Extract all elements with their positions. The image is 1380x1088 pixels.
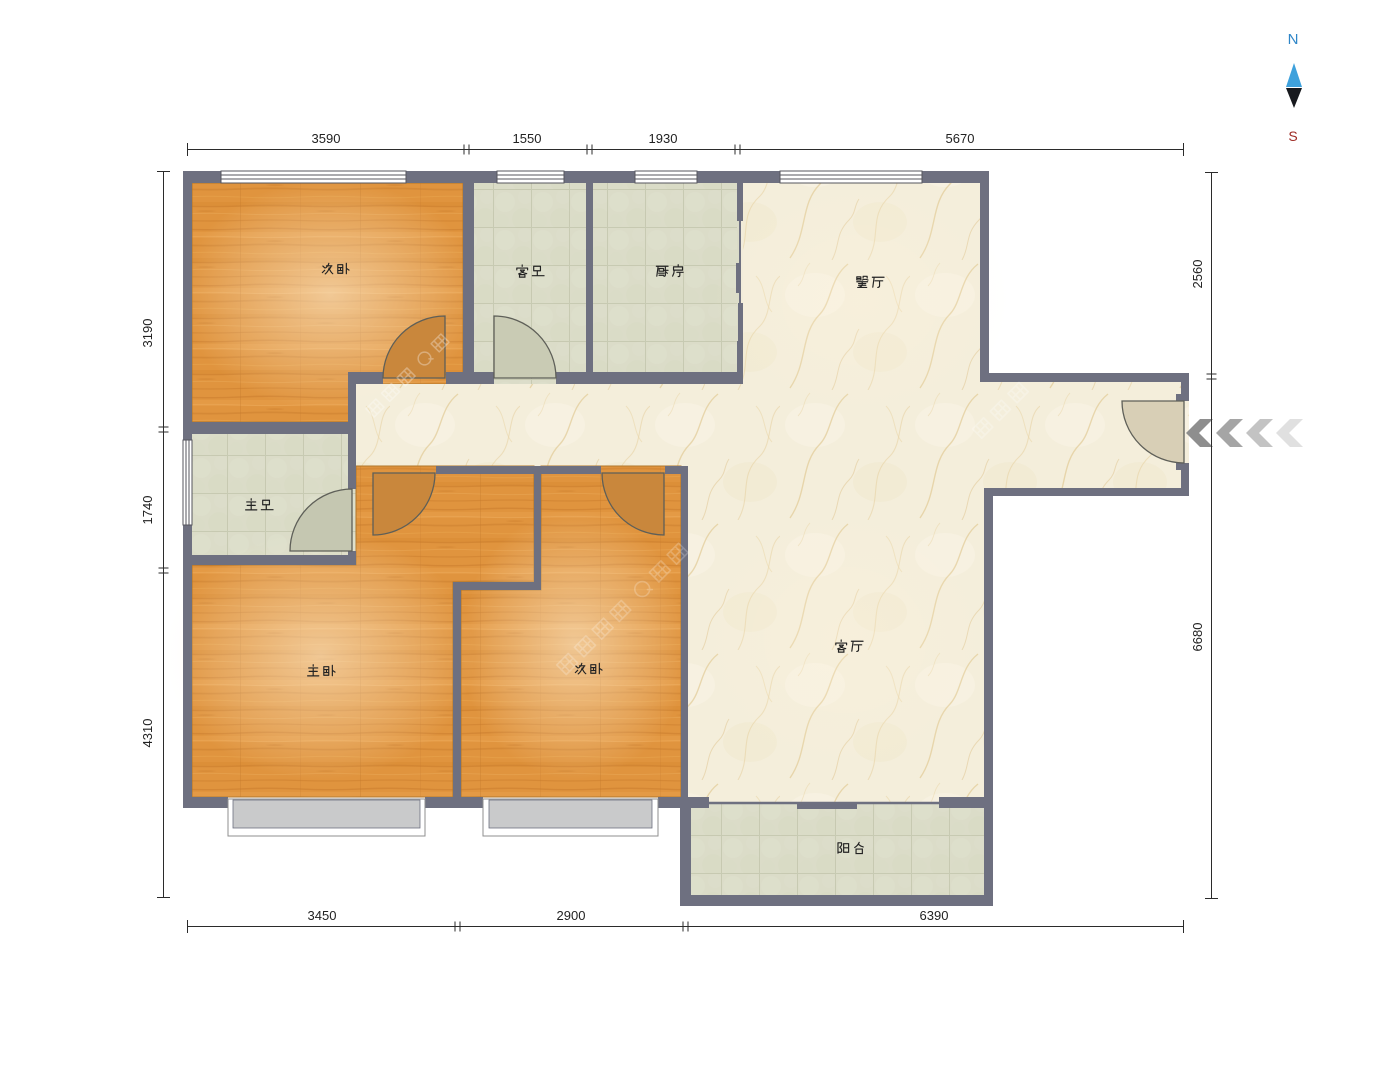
svg-text:1930: 1930 [649,131,678,146]
svg-text:1550: 1550 [513,131,542,146]
svg-text:2900: 2900 [557,908,586,923]
svg-text:N: N [1288,31,1299,48]
svg-text:1740: 1740 [140,496,155,525]
svg-text:2560: 2560 [1190,260,1205,289]
svg-text:S: S [1288,128,1297,144]
svg-text:3590: 3590 [312,131,341,146]
svg-text:5670: 5670 [946,131,975,146]
svg-text:4310: 4310 [140,719,155,748]
svg-text:3450: 3450 [308,908,337,923]
svg-text:6680: 6680 [1190,623,1205,652]
svg-text:6390: 6390 [920,908,949,923]
svg-text:3190: 3190 [140,319,155,348]
